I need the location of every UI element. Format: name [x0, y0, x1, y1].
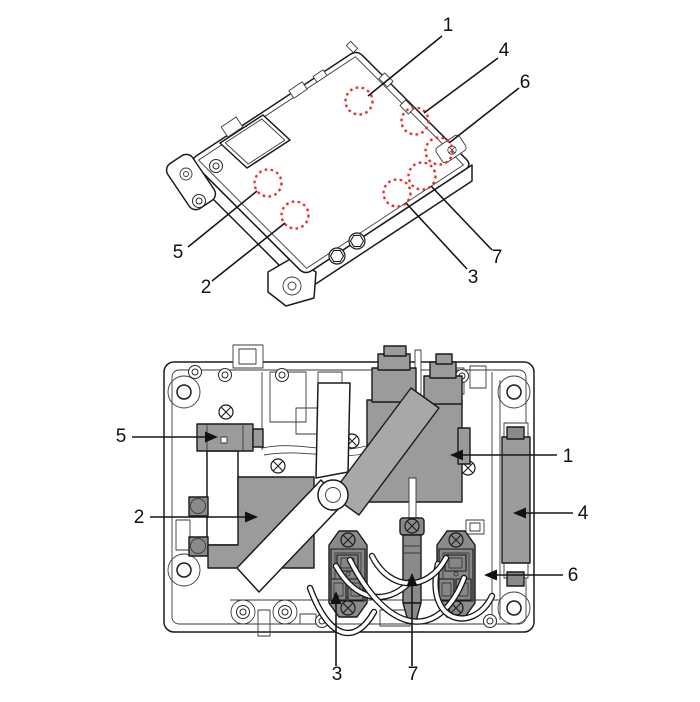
top-bracket-tab [233, 345, 263, 368]
terminal-bolt-icon [349, 233, 365, 249]
part-6-label: 6 [520, 72, 531, 93]
callout-2-label: 2 [134, 507, 145, 528]
callout-7-label: 7 [408, 664, 419, 685]
bus-bar-upper-branch [316, 383, 350, 478]
ear-screw-icon [193, 195, 206, 208]
edge-clip [346, 41, 357, 52]
part-2-label: 2 [201, 277, 212, 298]
callout-1-label: 1 [563, 446, 574, 467]
part-3-label: 3 [468, 267, 479, 288]
terminal-bolt-icon [329, 248, 345, 264]
part-1-label: 1 [443, 15, 454, 36]
bus-bar-hub [318, 480, 348, 510]
top-view: 5 2 1 4 6 3 7 [116, 345, 589, 685]
technical-diagram-page: 1 4 6 5 2 3 7 [0, 0, 700, 702]
component-4-module [502, 423, 530, 586]
part-1-leader-line [368, 36, 442, 96]
part-4-leader-line [424, 58, 498, 113]
part-3-leader-line [406, 203, 467, 269]
part-6-leader-line [449, 88, 519, 143]
technical-diagram-canvas: 1 4 6 5 2 3 7 [0, 0, 700, 702]
callout-3-label: 3 [332, 664, 343, 685]
part-4-label: 4 [499, 40, 510, 61]
callout-6-label: 6 [568, 565, 579, 586]
callout-5-label: 5 [116, 426, 127, 447]
callout-4-label: 4 [578, 503, 589, 524]
isometric-view: 1 4 6 5 2 3 7 [163, 15, 530, 306]
part-5-label: 5 [173, 242, 184, 263]
part-7-label: 7 [492, 247, 503, 268]
face-screw-icon [210, 160, 223, 173]
component-4-body [502, 437, 530, 563]
